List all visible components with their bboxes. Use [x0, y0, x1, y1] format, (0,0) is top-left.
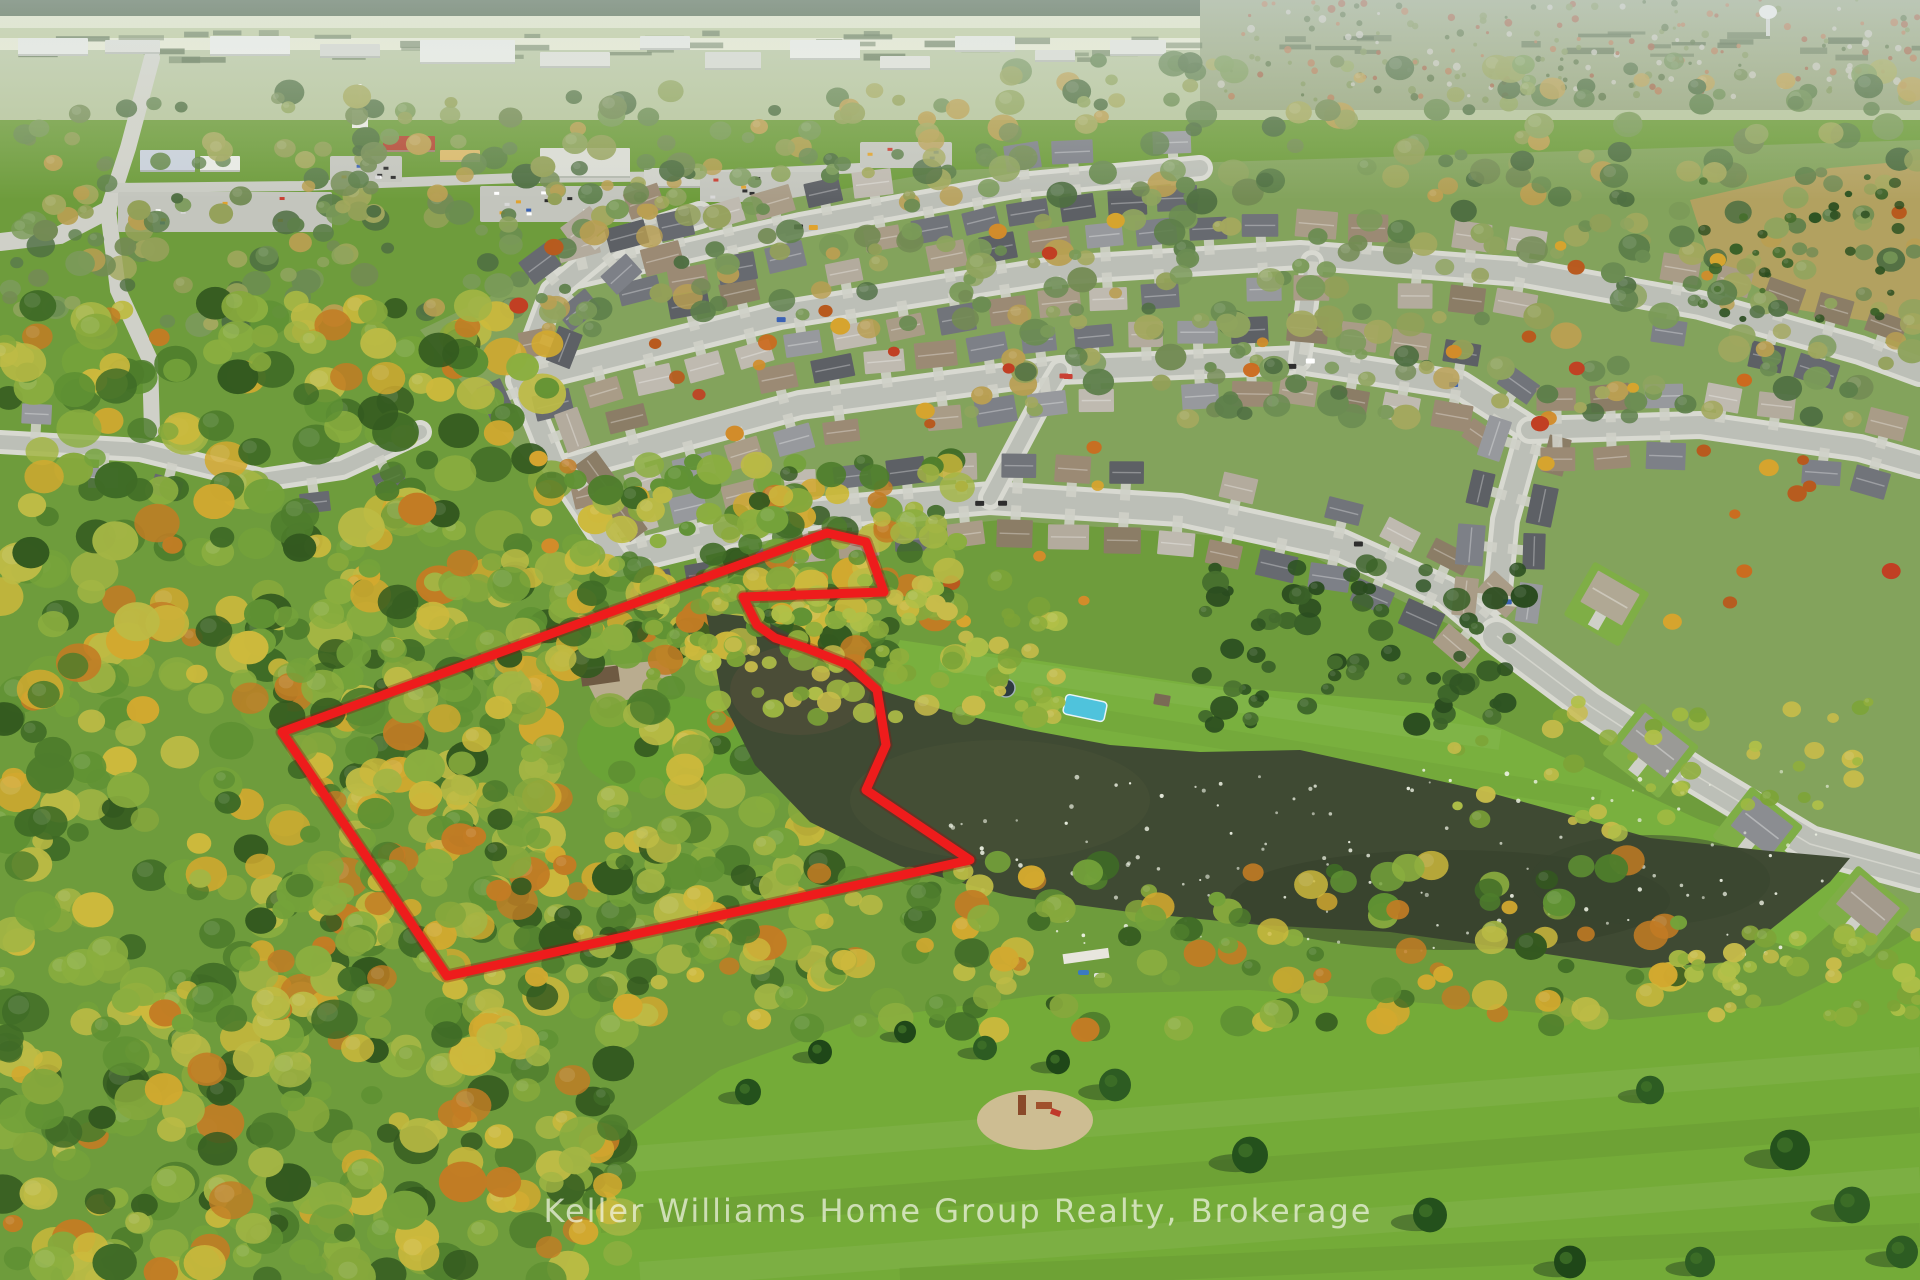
atmospheric-haze [0, 0, 1920, 200]
aerial-photo-canvas: Keller Williams Home Group Realty, Broke… [0, 0, 1920, 1280]
watermark: Keller Williams Home Group Realty, Broke… [544, 1192, 1373, 1230]
aerial-photo: Keller Williams Home Group Realty, Broke… [0, 0, 1920, 1280]
